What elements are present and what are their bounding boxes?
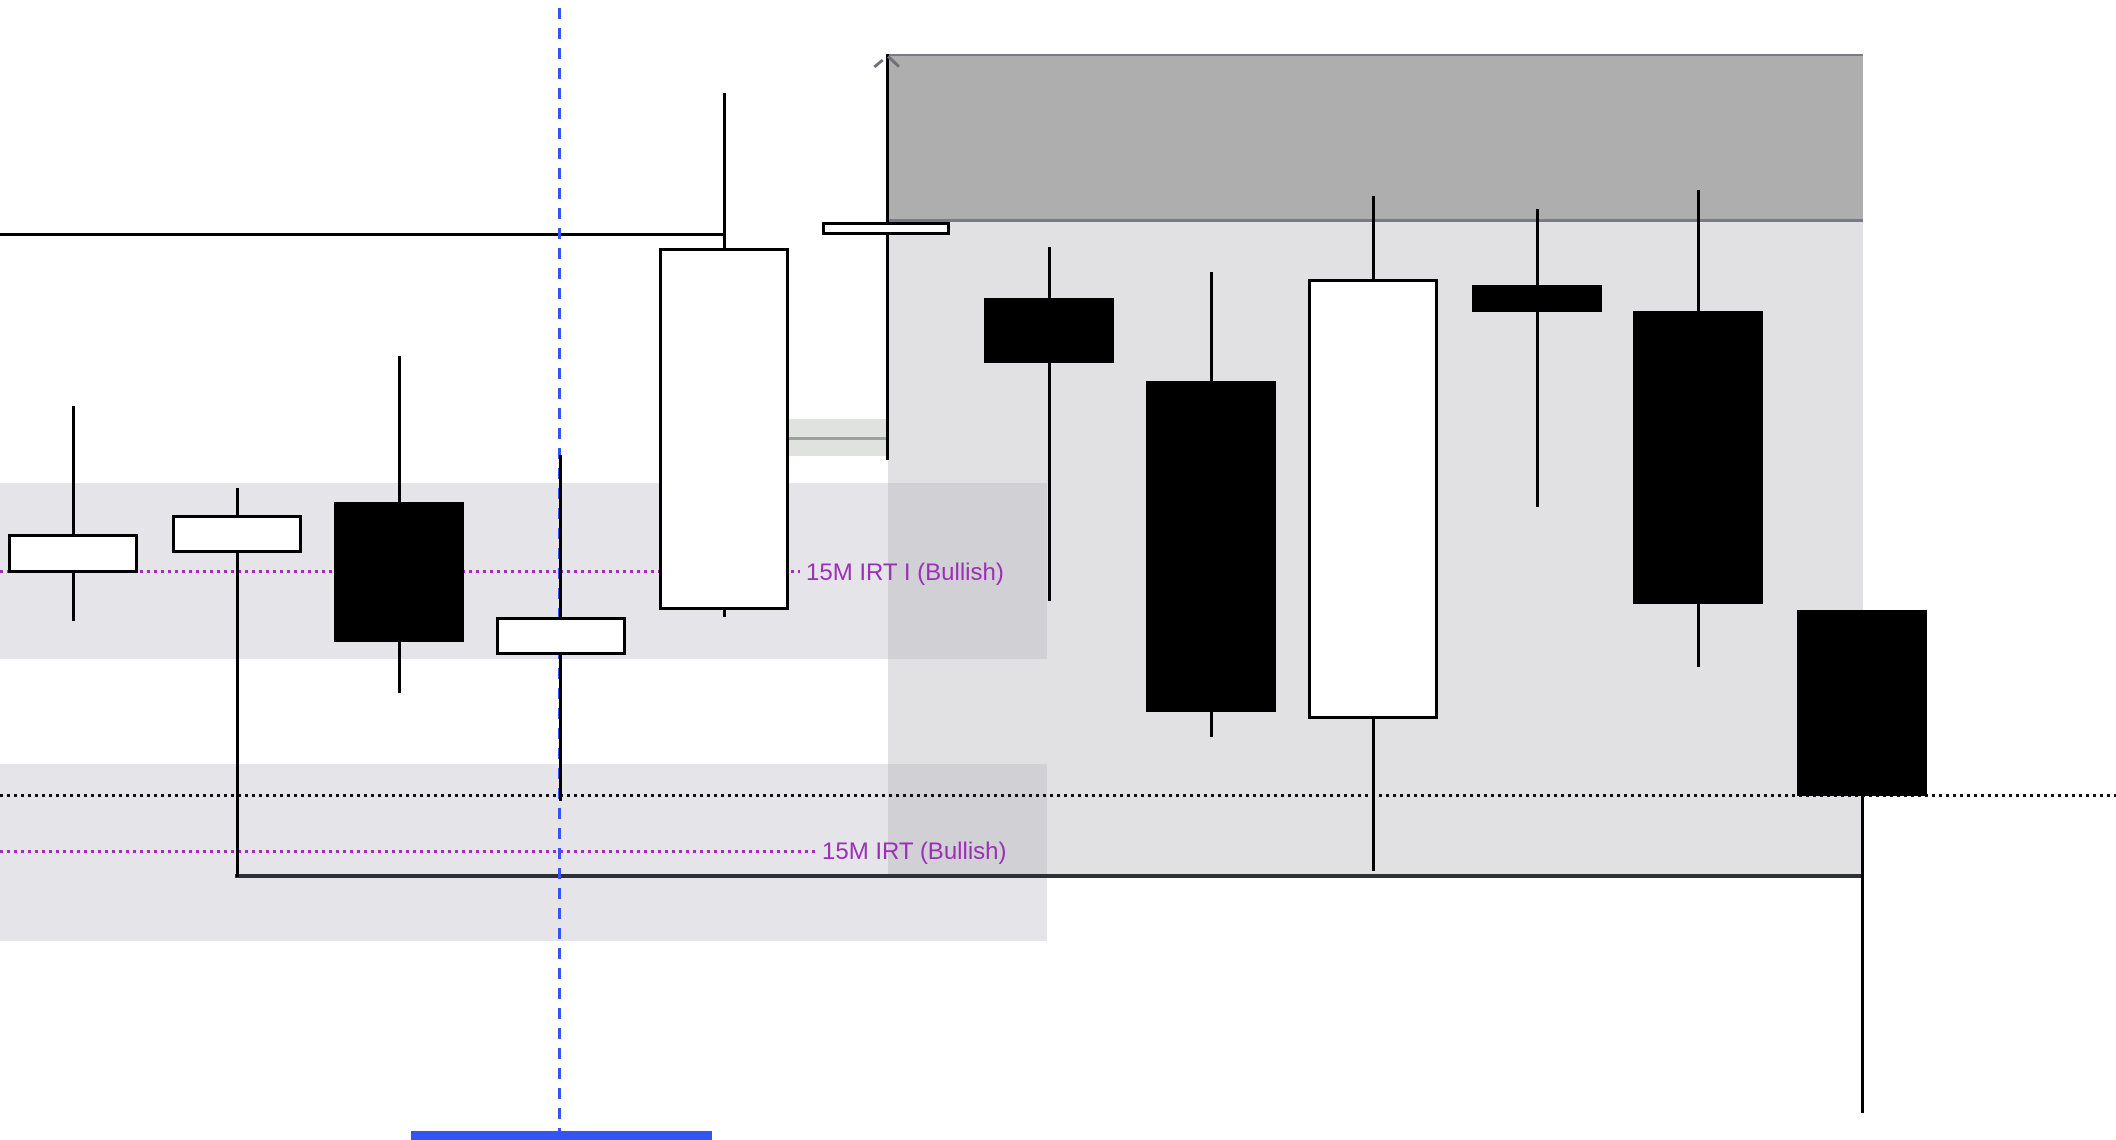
candle-1-wick [72,406,75,621]
candle-6-body [822,222,950,235]
candle-10-body [1472,285,1602,312]
irt2-dotted-line[interactable] [0,850,818,853]
candle-4-body [496,617,626,655]
irt2-label[interactable]: 15M IRT (Bullish) [822,840,1007,864]
session-highlight-bar[interactable] [411,1131,712,1140]
open-level-line[interactable] [0,233,723,236]
range-low-line[interactable] [235,874,1861,878]
candle-11-body [1633,311,1763,604]
candle-7-body [984,298,1114,363]
irt1-label[interactable]: 15M IRT I (Bullish) [806,561,1004,585]
chart-canvas: 15M IRT I (Bullish) 15M IRT (Bullish) [0,0,2116,1140]
candle-9-body [1308,279,1438,719]
candle-6-wick [886,54,889,460]
candle-12-body [1797,610,1927,796]
imbalance-box-midline [789,437,887,440]
candle-10-wick [1536,209,1539,507]
premium-zone-box[interactable] [887,54,1863,222]
anchor-mark-left [873,59,883,68]
candle-5-body [659,248,789,610]
candle-3-body [334,502,464,642]
candle-2-body [172,515,302,553]
candle-8-body [1146,381,1276,712]
candle-1-body [8,534,138,573]
